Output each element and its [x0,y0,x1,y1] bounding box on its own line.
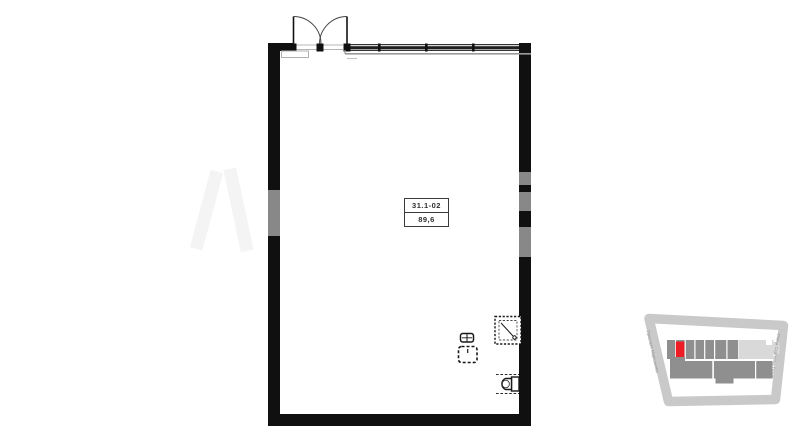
unit-id: 31.1-02 [405,199,448,213]
window-mullion [378,44,381,52]
shower-tray-icon [495,317,521,345]
road-ring [649,319,784,402]
window-mullion [472,44,475,52]
floor-plan-svg: Проспект Маршакова Улица Сергеева-Тракт [0,0,800,442]
unit-highlight[interactable] [676,342,685,358]
washing-machine-icon [459,347,478,363]
minimap[interactable]: Проспект Маршакова Улица Сергеева-Тракт [646,319,784,402]
wall-bottom [268,414,531,426]
sink-icon [461,334,474,343]
floor-plan-page: Проспект Маршакова Улица Сергеева-Тракт … [0,0,800,442]
unit-label-box: 31.1-02 89,6 [404,198,449,227]
room-area[interactable] [280,51,519,414]
window-mullion [425,44,428,52]
unit-area: 89,6 [405,213,448,226]
building-block-lower [670,357,773,384]
